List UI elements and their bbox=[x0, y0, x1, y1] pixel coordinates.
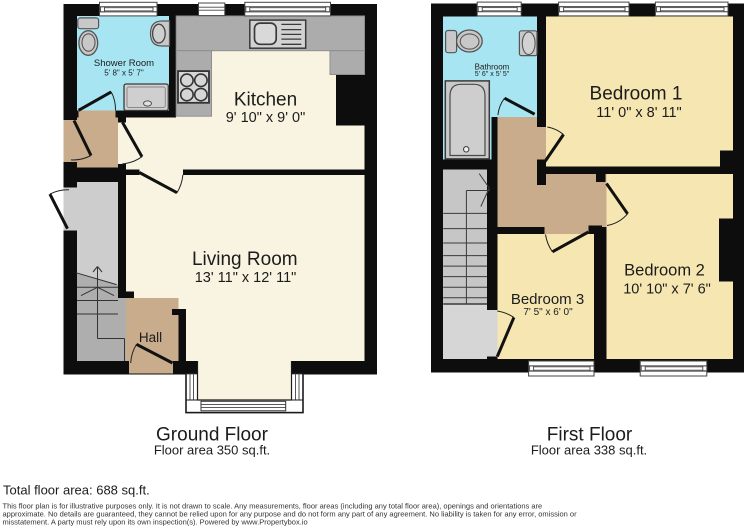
svg-text:Bedroom 2: Bedroom 2 bbox=[624, 262, 705, 280]
svg-text:Bedroom 3: Bedroom 3 bbox=[511, 291, 584, 308]
svg-text:Floor area 350 sq.ft.: Floor area 350 sq.ft. bbox=[154, 443, 270, 458]
svg-text:13' 11" x 12' 11": 13' 11" x 12' 11" bbox=[195, 270, 297, 286]
svg-text:Total floor area: 688 sq.ft.: Total floor area: 688 sq.ft. bbox=[3, 483, 150, 498]
svg-text:5' 6" x 5' 5": 5' 6" x 5' 5" bbox=[475, 71, 510, 78]
svg-text:10' 10" x 7' 6": 10' 10" x 7' 6" bbox=[623, 282, 711, 298]
svg-text:9' 10" x 9' 0": 9' 10" x 9' 0" bbox=[226, 110, 306, 126]
svg-text:Shower Room: Shower Room bbox=[94, 58, 154, 69]
svg-text:7' 5" x 6' 0": 7' 5" x 6' 0" bbox=[523, 307, 573, 318]
svg-text:Floor area 338 sq.ft.: Floor area 338 sq.ft. bbox=[531, 443, 647, 458]
svg-text:misstatement. A party must rel: misstatement. A party must rely upon its… bbox=[3, 518, 308, 527]
svg-text:Kitchen: Kitchen bbox=[234, 90, 297, 111]
svg-text:Hall: Hall bbox=[139, 330, 162, 345]
svg-text:Living Room: Living Room bbox=[192, 249, 298, 270]
svg-text:11' 0" x 8' 11": 11' 0" x 8' 11" bbox=[596, 105, 681, 121]
svg-text:Bedroom 1: Bedroom 1 bbox=[590, 84, 683, 105]
svg-text:5' 8" x 5' 7": 5' 8" x 5' 7" bbox=[104, 69, 144, 78]
